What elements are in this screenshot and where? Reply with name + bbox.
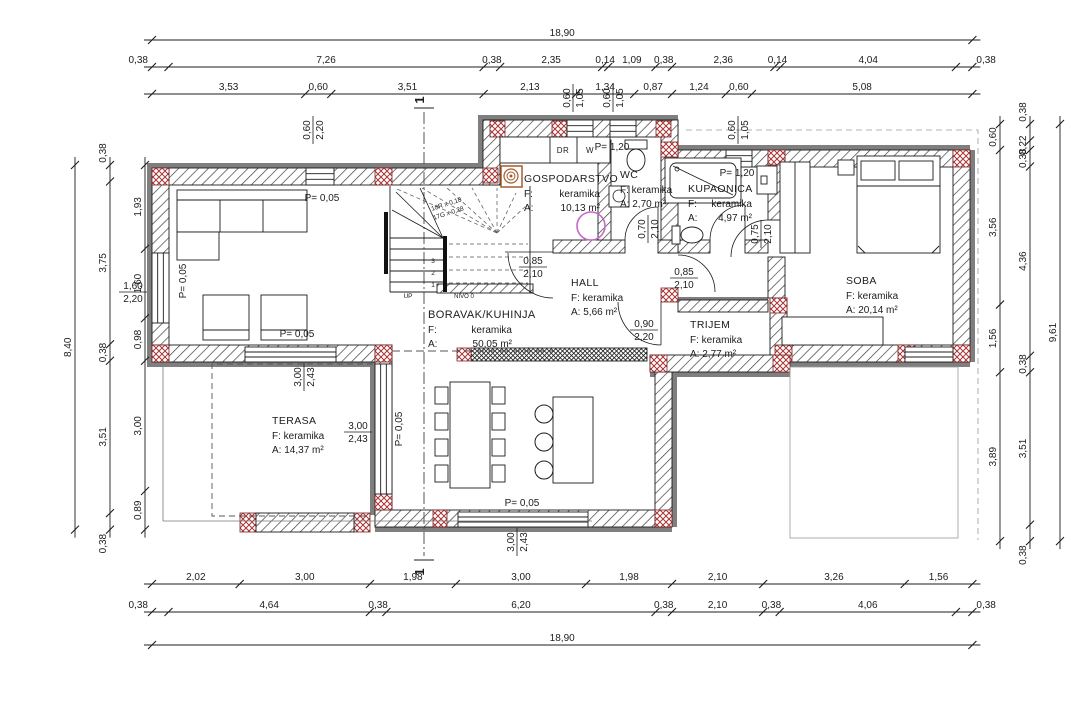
dim-label: 5,08 xyxy=(852,82,872,93)
pier xyxy=(152,168,169,185)
wall xyxy=(655,372,672,527)
dim-label: 2,35 xyxy=(541,55,561,66)
bar-stool xyxy=(535,461,553,479)
pier xyxy=(433,510,447,527)
insulation-band xyxy=(152,163,500,168)
dim-label: 3,51 xyxy=(398,82,418,93)
room-name: GOSPODARSTVO xyxy=(524,173,618,185)
dim-label: 1,09 xyxy=(622,55,642,66)
stair-direction-label: UP xyxy=(403,293,412,300)
opening-size-label: 0,852,10 xyxy=(670,267,698,291)
opening-height: 2,10 xyxy=(763,224,774,244)
dim-label: 0,38 xyxy=(976,55,996,66)
sofa xyxy=(177,190,307,232)
section-mark: 1 xyxy=(412,568,427,575)
opening-height: 2,43 xyxy=(519,532,530,552)
insulation-band xyxy=(970,150,975,362)
room-floor-key: F: xyxy=(524,189,533,200)
opening-width: 1,60 xyxy=(123,281,143,292)
dim-label: 2,10 xyxy=(708,572,728,583)
rear-patio-outline xyxy=(790,367,958,538)
opening-size-label: 3,002,43 xyxy=(293,363,317,391)
room-floor-key: F: xyxy=(428,325,437,336)
stair-step-number: 3 xyxy=(431,258,435,265)
room-floor: keramika xyxy=(471,325,512,336)
window xyxy=(306,168,334,185)
stair-step-number: 1 xyxy=(431,282,435,289)
dim-label: 3,75 xyxy=(98,253,109,273)
dim-label: 3,56 xyxy=(988,217,999,237)
dim-label: 0,38 xyxy=(98,342,109,362)
bar-stool xyxy=(535,405,553,423)
pier xyxy=(552,121,567,137)
wardrobe-low xyxy=(782,317,883,345)
room-area: 4,97 m² xyxy=(718,213,753,224)
room-area: A: 2,77 m² xyxy=(690,349,737,360)
dim-label: 3,26 xyxy=(824,572,844,583)
dim-label: 3,89 xyxy=(988,447,999,467)
surface-level-label: P= 0,05 xyxy=(280,329,315,340)
stair-winder-dashed xyxy=(497,193,516,233)
wall xyxy=(768,257,785,298)
opening-size-label: 0,902,20 xyxy=(630,319,658,343)
wall xyxy=(437,284,533,293)
dining-chair xyxy=(492,439,505,456)
dim-label: 2,02 xyxy=(186,572,206,583)
insulation-band xyxy=(672,372,677,527)
dim-label: 1,24 xyxy=(689,82,709,93)
opening-height: 2,10 xyxy=(523,269,543,280)
dining-chair xyxy=(435,439,448,456)
pier xyxy=(656,121,671,137)
window xyxy=(375,364,392,494)
room-area: A: 5,66 m² xyxy=(571,307,618,318)
opening-width: 0,85 xyxy=(674,267,694,278)
window xyxy=(567,120,593,137)
room-floor: keramika xyxy=(711,199,752,210)
opening-height: 1,05 xyxy=(615,88,626,108)
surface-level-label: P= 0,05 xyxy=(178,263,189,298)
dim-label: 1,93 xyxy=(133,197,144,217)
opening-height: 2,43 xyxy=(348,434,368,445)
dim-label: 8,40 xyxy=(63,337,74,357)
room-floor: F: keramika xyxy=(620,185,673,196)
dining-chair xyxy=(492,465,505,482)
pier xyxy=(770,298,787,313)
opening-width: 0,60 xyxy=(727,120,738,140)
cabinet-knob xyxy=(761,176,767,184)
opening-height: 2,43 xyxy=(306,367,317,387)
pier xyxy=(457,348,471,361)
dim-label: 4,04 xyxy=(858,55,878,66)
room-area-key: A: xyxy=(524,203,533,214)
insulation-band xyxy=(152,362,392,367)
floor-plan-drawing: 18,900,387,260,382,350,141,090,382,360,1… xyxy=(0,0,1071,706)
dim-label: 0,38 xyxy=(98,143,109,163)
room-name: HALL xyxy=(571,277,599,289)
room-floor: F: keramika xyxy=(571,293,624,304)
window xyxy=(458,512,588,527)
pier xyxy=(953,150,970,167)
insulation-band xyxy=(483,115,678,120)
dim-label: 1,98 xyxy=(619,572,639,583)
dining-chair xyxy=(435,413,448,430)
surface-level-label: P= 1,20 xyxy=(595,142,630,153)
wall xyxy=(953,150,970,362)
opening-width: 0,85 xyxy=(523,256,543,267)
room-area-key: A: xyxy=(428,339,437,350)
pier xyxy=(953,345,970,362)
dim-label: 18,90 xyxy=(550,633,575,644)
pier xyxy=(661,142,678,157)
dim-label: 2,13 xyxy=(520,82,540,93)
dim-label: 18,90 xyxy=(550,28,575,39)
dim-label: 0,38 xyxy=(1018,102,1029,122)
dim-label: 0,38 xyxy=(1018,545,1029,565)
toilet-bowl xyxy=(627,149,645,171)
toilet-tank xyxy=(672,226,680,244)
dim-label: 3,00 xyxy=(133,416,144,436)
opening-width: 0,60 xyxy=(562,88,573,108)
room-area-key: A: xyxy=(688,213,697,224)
surface-level-label: P= 0,05 xyxy=(305,193,340,204)
opening-width: 3,00 xyxy=(506,532,517,552)
room-name: BORAVAK/KUHINJA xyxy=(428,309,536,321)
room-name: SOBA xyxy=(846,275,877,287)
dim-label: 3,53 xyxy=(219,82,239,93)
pier xyxy=(375,493,392,510)
kitchen-island xyxy=(553,397,593,483)
dim-label: 3,00 xyxy=(511,572,531,583)
room-floor: F: keramika xyxy=(272,431,325,442)
dim-label: 1,56 xyxy=(988,328,999,348)
pier xyxy=(152,345,169,362)
insulation-band xyxy=(375,527,672,532)
room-name: WC xyxy=(620,169,638,181)
dim-label: 0,38 xyxy=(654,55,674,66)
opening-width: 0,60 xyxy=(602,88,613,108)
dim-label: 2,10 xyxy=(708,600,728,611)
dining-chair xyxy=(435,465,448,482)
surface-level-label: P= 0,05 xyxy=(394,411,405,446)
stair-winder-dashed xyxy=(472,188,497,233)
armchair xyxy=(203,295,249,340)
opening-width: 3,00 xyxy=(293,367,304,387)
dim-label: 0,60 xyxy=(729,82,749,93)
pier xyxy=(490,121,505,137)
dim-label: 0,98 xyxy=(133,329,144,349)
appliance-label: W xyxy=(586,146,594,155)
surface-level-label: P= 1,20 xyxy=(720,168,755,179)
dining-chair xyxy=(435,387,448,404)
opening-height: 2,10 xyxy=(674,280,694,291)
opening-size-label: 0,601,05 xyxy=(562,84,586,112)
dim-label: 3,51 xyxy=(98,427,109,447)
dim-label: 0,87 xyxy=(643,82,663,93)
dim-label: 0,14 xyxy=(768,55,788,66)
dim-label: 0,38 xyxy=(129,600,149,611)
dim-label: 3,00 xyxy=(295,572,315,583)
dim-label: 0,89 xyxy=(133,500,144,520)
stair-winder-dashed xyxy=(497,205,527,233)
room-floor-key: F: xyxy=(688,199,697,210)
dining-chair xyxy=(492,387,505,404)
dim-label: 4,36 xyxy=(1018,251,1029,271)
dim-label: 2,36 xyxy=(714,55,734,66)
pier xyxy=(375,168,392,185)
dim-label: 0,38 xyxy=(98,533,109,553)
opening-width: 0,60 xyxy=(302,120,313,140)
window xyxy=(245,347,336,362)
pier xyxy=(655,510,672,527)
opening-size-label: 0,852,10 xyxy=(519,256,547,280)
dim-label: 4,64 xyxy=(259,600,279,611)
room-area: A: 2,70 m² xyxy=(620,199,667,210)
window xyxy=(905,347,953,362)
opening-width: 0,75 xyxy=(750,224,761,244)
room-area: 50,05 m² xyxy=(473,339,513,350)
room-area: A: 14,37 m² xyxy=(272,445,324,456)
opening-height: 2,20 xyxy=(634,332,654,343)
dim-label: 0,38 xyxy=(1018,148,1029,168)
dining-chair xyxy=(492,413,505,430)
pier xyxy=(773,355,790,372)
opening-size-label: 3,002,43 xyxy=(506,528,530,556)
opening-height: 2,20 xyxy=(315,120,326,140)
dim-label: 0,14 xyxy=(595,55,615,66)
dining-table xyxy=(450,382,490,488)
nightstand xyxy=(838,160,854,175)
surface-level-label: P= 0,05 xyxy=(505,498,540,509)
toilet-bowl xyxy=(681,227,703,243)
pillow xyxy=(899,161,933,180)
opening-size-label: 3,002,43 xyxy=(344,421,372,445)
pier xyxy=(375,345,392,362)
dim-label: 0,38 xyxy=(1018,354,1029,374)
opening-width: 0,70 xyxy=(637,219,648,239)
dim-label: 0,38 xyxy=(654,600,674,611)
opening-size-label: 0,702,10 xyxy=(637,215,661,243)
dim-label: 6,20 xyxy=(511,600,531,611)
dim-label: 0,38 xyxy=(368,600,388,611)
opening-height: 2,10 xyxy=(650,219,661,239)
wall xyxy=(553,240,625,253)
room-area: 10,13 m² xyxy=(561,203,601,214)
room-name: KUPAONICA xyxy=(688,183,753,195)
stair-step-number: 2 xyxy=(431,270,435,277)
pillow xyxy=(861,161,895,180)
insulation-band xyxy=(775,362,970,367)
wall xyxy=(678,300,768,312)
opening-height: 1,05 xyxy=(740,120,751,140)
dim-label: 9,61 xyxy=(1048,322,1059,342)
dim-label: 0,38 xyxy=(482,55,502,66)
room-floor: F: keramika xyxy=(690,335,743,346)
floor-plan-page: 18,900,387,260,382,350,141,090,382,360,1… xyxy=(0,0,1071,706)
chimney-flue xyxy=(510,175,513,178)
dim-label: 0,38 xyxy=(129,55,149,66)
dim-label: 1,56 xyxy=(929,572,949,583)
window xyxy=(152,253,169,323)
pier xyxy=(650,355,667,372)
dim-label: 3,51 xyxy=(1018,438,1029,458)
opening-height: 1,05 xyxy=(575,88,586,108)
room-name: TERASA xyxy=(272,415,316,427)
stair-handrail xyxy=(384,212,388,274)
bar-stool xyxy=(535,433,553,451)
window xyxy=(610,120,636,137)
dim-label: 0,38 xyxy=(976,600,996,611)
opening-size-label: 0,602,20 xyxy=(302,116,326,144)
stair-newel-wall xyxy=(443,236,447,292)
sofa-chaise xyxy=(177,232,219,260)
room-area: A: 20,14 m² xyxy=(846,305,898,316)
pier xyxy=(483,168,498,183)
section-mark: 1 xyxy=(412,96,427,103)
opening-width: 0,90 xyxy=(634,319,654,330)
dim-label: 4,06 xyxy=(858,600,878,611)
insulation-band xyxy=(678,145,970,150)
room-name: TRIJEM xyxy=(690,319,730,331)
opening-width: 3,00 xyxy=(348,421,368,432)
insulation-band xyxy=(147,163,152,367)
dim-label: 7,26 xyxy=(316,55,336,66)
dim-label: 0,60 xyxy=(988,127,999,147)
insulation-band xyxy=(370,345,375,515)
dim-label: 0,38 xyxy=(762,600,782,611)
dim-label: 0,60 xyxy=(309,82,329,93)
opening-height: 2,20 xyxy=(123,294,143,305)
stair-level-label: NIVO 0 xyxy=(454,294,474,300)
appliance-label: DR xyxy=(557,146,570,155)
room-floor: F: keramika xyxy=(846,291,899,302)
room-floor: keramika xyxy=(559,189,600,200)
